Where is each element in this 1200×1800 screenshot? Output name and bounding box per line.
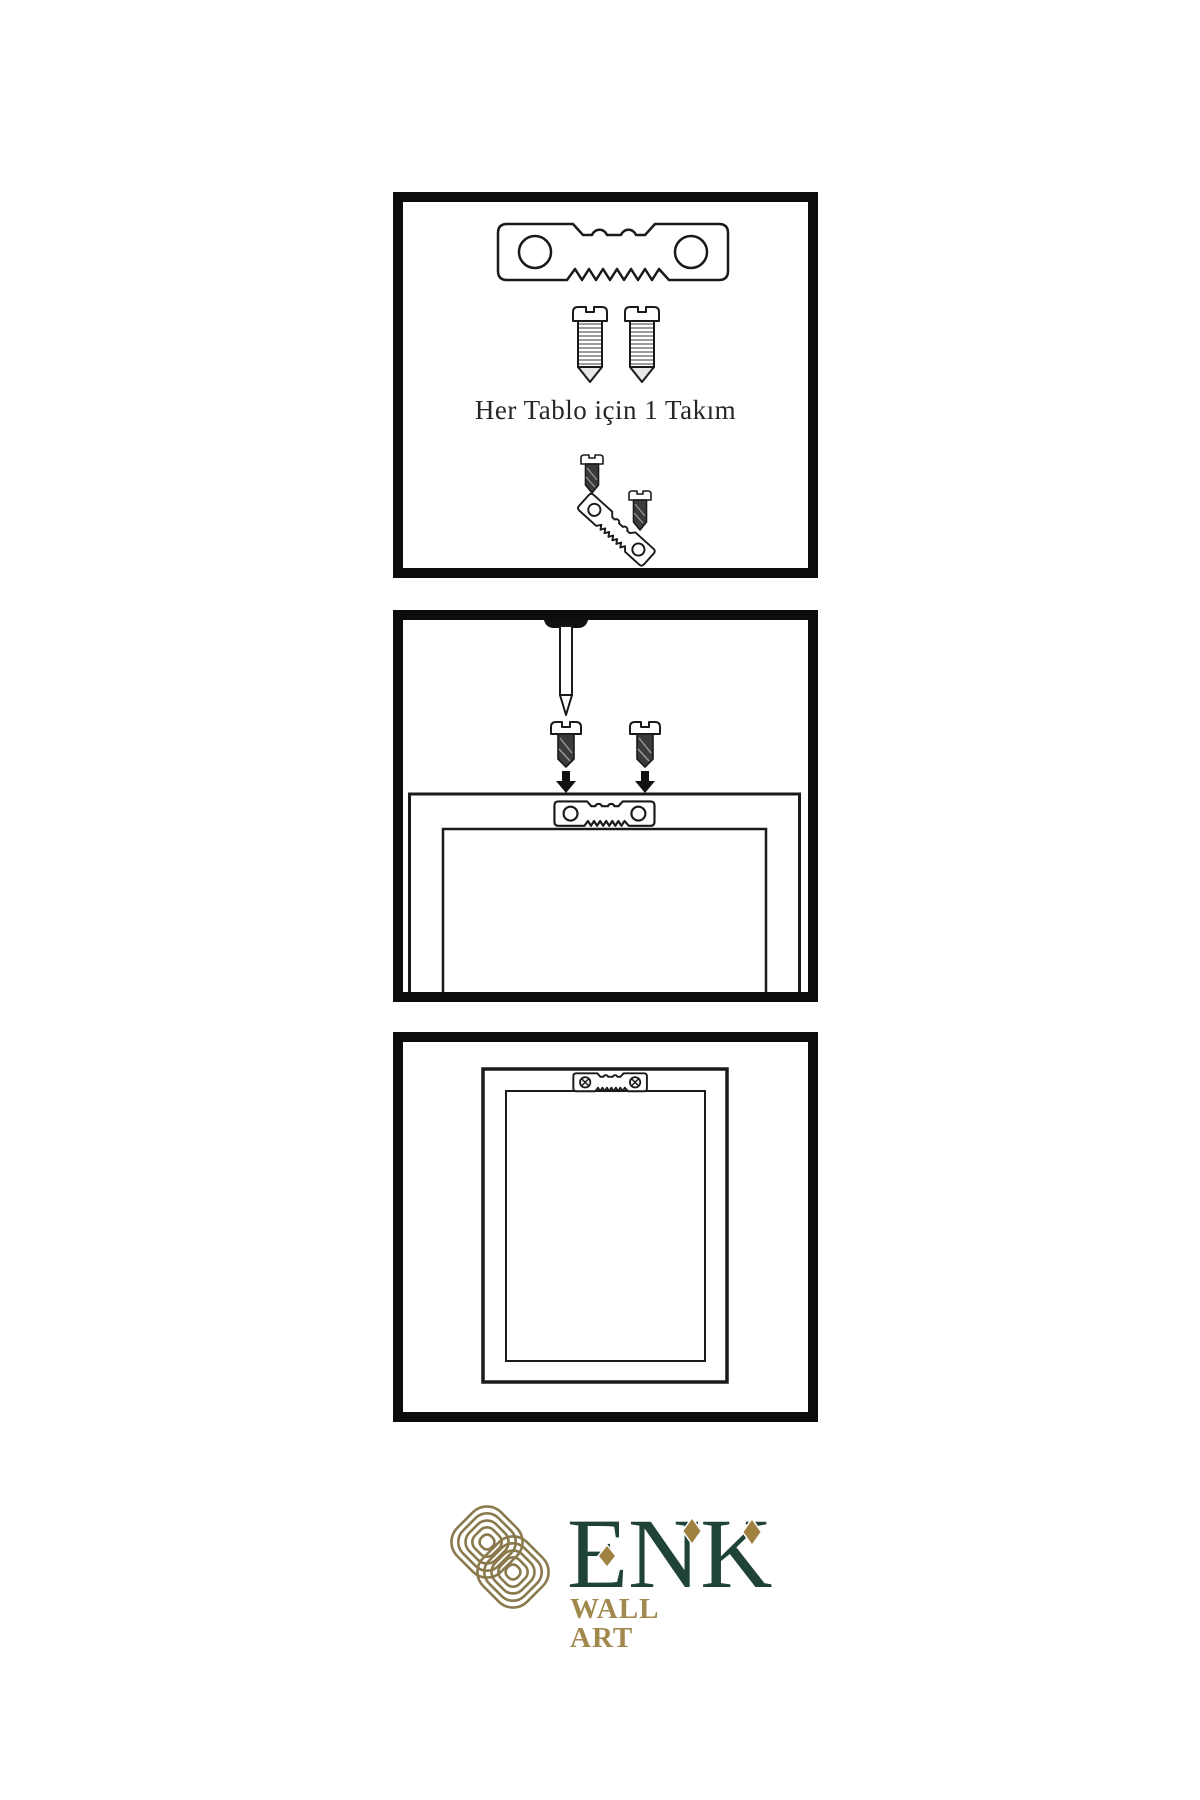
- mounting-screw-icon: [573, 307, 607, 382]
- mounting-diagram: [403, 620, 808, 992]
- sawtooth-hanger-icon: [498, 224, 728, 280]
- brand-subtitle: WALL ART: [570, 1595, 658, 1653]
- kit-caption: Her Tablo için 1 Takım: [403, 395, 808, 426]
- hung-frame-diagram: [403, 1042, 808, 1412]
- screw-into-hanger-icon: [577, 455, 656, 567]
- wall-nail-icon: [544, 620, 588, 715]
- down-arrow-icon: [556, 771, 576, 793]
- phillips-screw-head-icon: [580, 1077, 590, 1087]
- instruction-sheet: Her Tablo için 1 Takım: [0, 0, 1200, 1800]
- brand-name: ENK: [567, 1504, 773, 1604]
- hardware-kit-diagram: [403, 202, 808, 568]
- mounting-screw-icon: [625, 307, 659, 382]
- dark-screw-icon: [551, 722, 581, 767]
- panel-hung-frame: [393, 1032, 818, 1422]
- phillips-screw-head-icon: [630, 1077, 640, 1087]
- dark-screw-icon: [630, 722, 660, 767]
- panel-mounting-step: [393, 610, 818, 1002]
- panel-hardware-kit: Her Tablo için 1 Takım: [393, 192, 818, 578]
- down-arrow-icon: [635, 771, 655, 793]
- frame-back-icon: [483, 1069, 727, 1382]
- sawtooth-hanger-icon: [554, 801, 654, 825]
- knot-logo-icon: [436, 1487, 564, 1629]
